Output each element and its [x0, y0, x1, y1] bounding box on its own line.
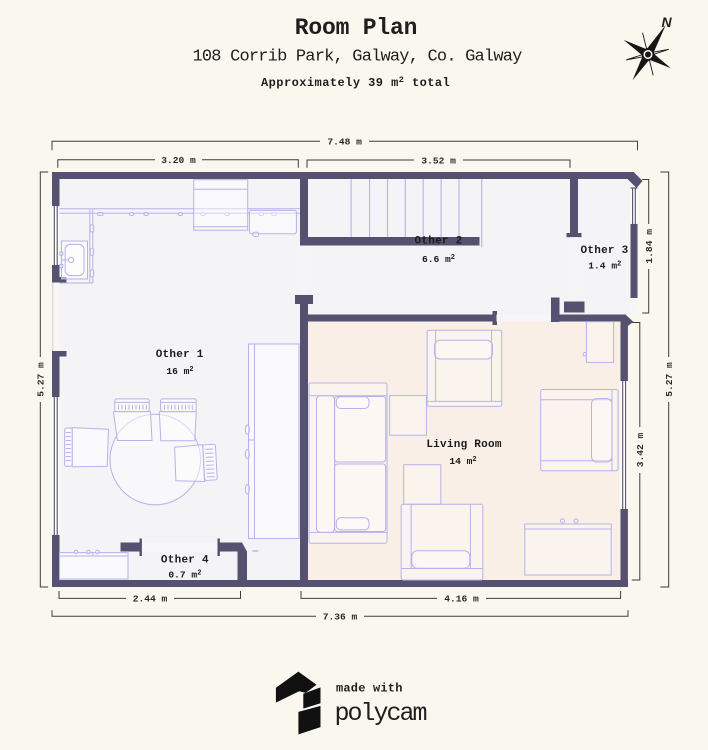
svg-text:5.27 m: 5.27 m [36, 362, 47, 397]
svg-text:3.20 m: 3.20 m [161, 155, 196, 166]
svg-text:Approximately 39 m2 total: Approximately 39 m2 total [261, 75, 450, 90]
svg-text:N: N [661, 14, 672, 30]
svg-text:5.27 m: 5.27 m [664, 362, 675, 397]
svg-text:0.7 m2: 0.7 m2 [168, 570, 201, 581]
svg-text:made with: made with [336, 682, 403, 696]
svg-text:6.6 m2: 6.6 m2 [422, 254, 455, 265]
svg-text:Other 1: Other 1 [156, 349, 204, 361]
svg-text:7.36 m: 7.36 m [323, 612, 358, 623]
svg-text:Other 4: Other 4 [161, 555, 209, 567]
svg-text:polycam: polycam [335, 699, 427, 728]
svg-text:2.44 m: 2.44 m [133, 594, 168, 605]
svg-text:Living Room: Living Room [426, 439, 502, 451]
svg-text:4.16 m: 4.16 m [444, 594, 479, 605]
svg-text:Other 3: Other 3 [581, 245, 629, 257]
svg-text:3.52 m: 3.52 m [421, 155, 456, 166]
svg-text:108 Corrib Park, Galway, Co. G: 108 Corrib Park, Galway, Co. Galway [192, 48, 522, 67]
svg-text:Room Plan: Room Plan [295, 15, 417, 41]
svg-text:Other 2: Other 2 [415, 236, 463, 248]
svg-text:1.4 m2: 1.4 m2 [588, 261, 621, 272]
svg-text:1.84 m: 1.84 m [644, 229, 655, 264]
svg-text:3.42 m: 3.42 m [635, 432, 646, 467]
svg-text:7.48 m: 7.48 m [327, 136, 362, 147]
